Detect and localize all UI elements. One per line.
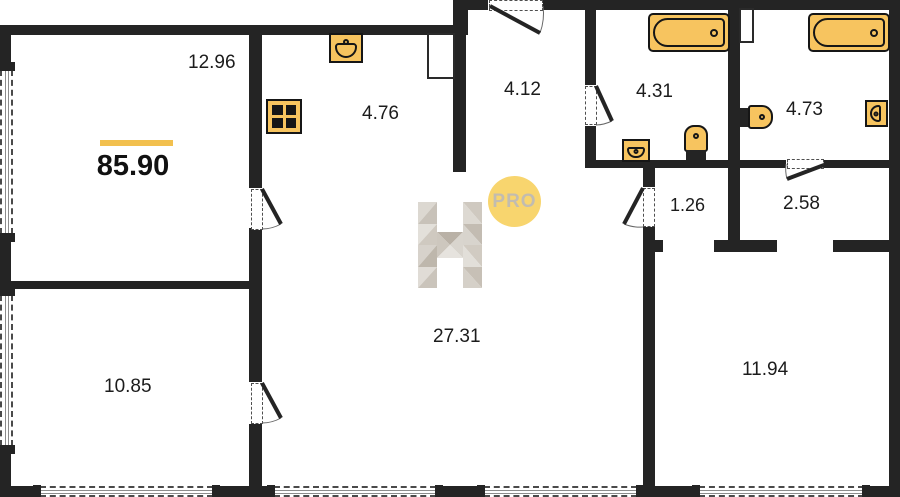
wall-segment	[637, 486, 699, 497]
toilet-icon	[748, 105, 773, 129]
door-swing-arc	[262, 224, 281, 229]
wall-segment	[824, 160, 889, 168]
window-glass	[484, 490, 637, 494]
window-end-cap	[267, 485, 275, 497]
window	[40, 486, 213, 497]
room-area-label: 10.85	[104, 376, 152, 398]
wall-segment	[249, 35, 262, 188]
bathtub-icon	[808, 13, 890, 52]
window	[274, 486, 436, 497]
door-opening	[489, 0, 543, 11]
floor-plan: 85.90 12.96 4.76 4.12 4.31 4.73 1.26 2.5…	[0, 0, 900, 497]
window-end-cap	[636, 485, 644, 497]
room-area-label: 4.12	[504, 79, 541, 101]
watermark-logo	[418, 202, 482, 288]
window	[699, 486, 864, 497]
window-end-cap	[0, 233, 15, 242]
wall-segment	[585, 10, 596, 85]
total-area-label: 85.90	[88, 150, 178, 183]
door-opening	[585, 86, 597, 125]
door-leaf	[624, 188, 643, 224]
washbasin-icon	[865, 100, 888, 127]
door-leaf	[262, 383, 281, 418]
sink-bowl	[335, 43, 357, 58]
room-area-label: 4.31	[636, 81, 673, 103]
wall-segment	[213, 486, 274, 497]
wall-segment	[249, 424, 262, 486]
toilet-drain	[693, 133, 699, 139]
wall-segment	[643, 240, 663, 252]
window-end-cap	[692, 485, 700, 497]
door-swing-arc	[262, 418, 281, 423]
wall-segment	[643, 227, 655, 486]
bathtub-icon	[648, 13, 730, 52]
wall-segment	[0, 281, 262, 289]
wall-segment	[889, 0, 900, 497]
pro-badge: PRO	[488, 176, 541, 227]
door-opening	[251, 189, 263, 230]
room-area-label: 1.26	[670, 195, 705, 216]
wall-segment	[643, 168, 655, 187]
toilet-icon	[684, 125, 708, 152]
ventilation-shaft	[739, 8, 754, 43]
burner	[286, 105, 297, 115]
wall-segment	[453, 0, 488, 10]
window-end-cap	[862, 485, 870, 497]
window-end-cap	[435, 485, 443, 497]
window-glass	[40, 490, 213, 494]
window-glass	[699, 490, 864, 494]
door-leaf	[596, 86, 612, 121]
room-area-label: 2.58	[783, 193, 820, 215]
window-end-cap	[33, 485, 41, 497]
burner	[272, 105, 283, 115]
window-end-cap	[477, 485, 485, 497]
stove-icon	[266, 99, 302, 134]
window-glass	[274, 490, 436, 494]
toilet-drain	[759, 114, 765, 120]
wall-segment	[0, 25, 11, 62]
washbasin-icon	[622, 139, 650, 162]
kitchen-sink-icon	[329, 33, 363, 63]
door-swing-arc	[624, 224, 643, 227]
door-opening	[787, 159, 824, 169]
bathtub-drain	[870, 29, 878, 37]
room-area-label: 4.73	[786, 99, 823, 121]
room-area-label: 11.94	[742, 359, 788, 381]
wall-segment	[714, 240, 777, 252]
window	[0, 70, 13, 234]
window-glass	[5, 295, 9, 446]
sink-drain	[634, 149, 639, 154]
h-logo-icon	[418, 202, 482, 288]
total-area-underline	[100, 140, 173, 146]
window	[0, 295, 13, 446]
door-leaf	[262, 189, 281, 224]
burner	[272, 118, 283, 128]
room-area-label: 4.76	[362, 103, 399, 125]
window-end-cap	[212, 485, 220, 497]
room-area-label: 27.31	[433, 326, 481, 348]
wall-segment	[0, 25, 468, 35]
pro-badge-label: PRO	[492, 191, 536, 213]
wall-segment	[833, 240, 889, 252]
toilet-tank	[686, 150, 706, 163]
wall-segment	[585, 126, 596, 162]
room-area-label: 12.96	[188, 52, 236, 74]
window-end-cap	[0, 62, 15, 71]
door-swing-arc	[596, 121, 612, 125]
window-glass	[5, 70, 9, 234]
window-end-cap	[0, 287, 15, 296]
bathtub-drain	[710, 29, 718, 37]
burner	[286, 118, 297, 128]
wall-segment	[249, 228, 262, 382]
door-opening	[251, 383, 263, 424]
window	[484, 486, 637, 497]
door-opening	[643, 188, 655, 227]
window-end-cap	[0, 445, 15, 454]
sink-drain	[343, 39, 349, 45]
wall-segment	[543, 0, 900, 10]
sink-drain	[873, 111, 878, 116]
ventilation-shaft	[427, 33, 455, 79]
